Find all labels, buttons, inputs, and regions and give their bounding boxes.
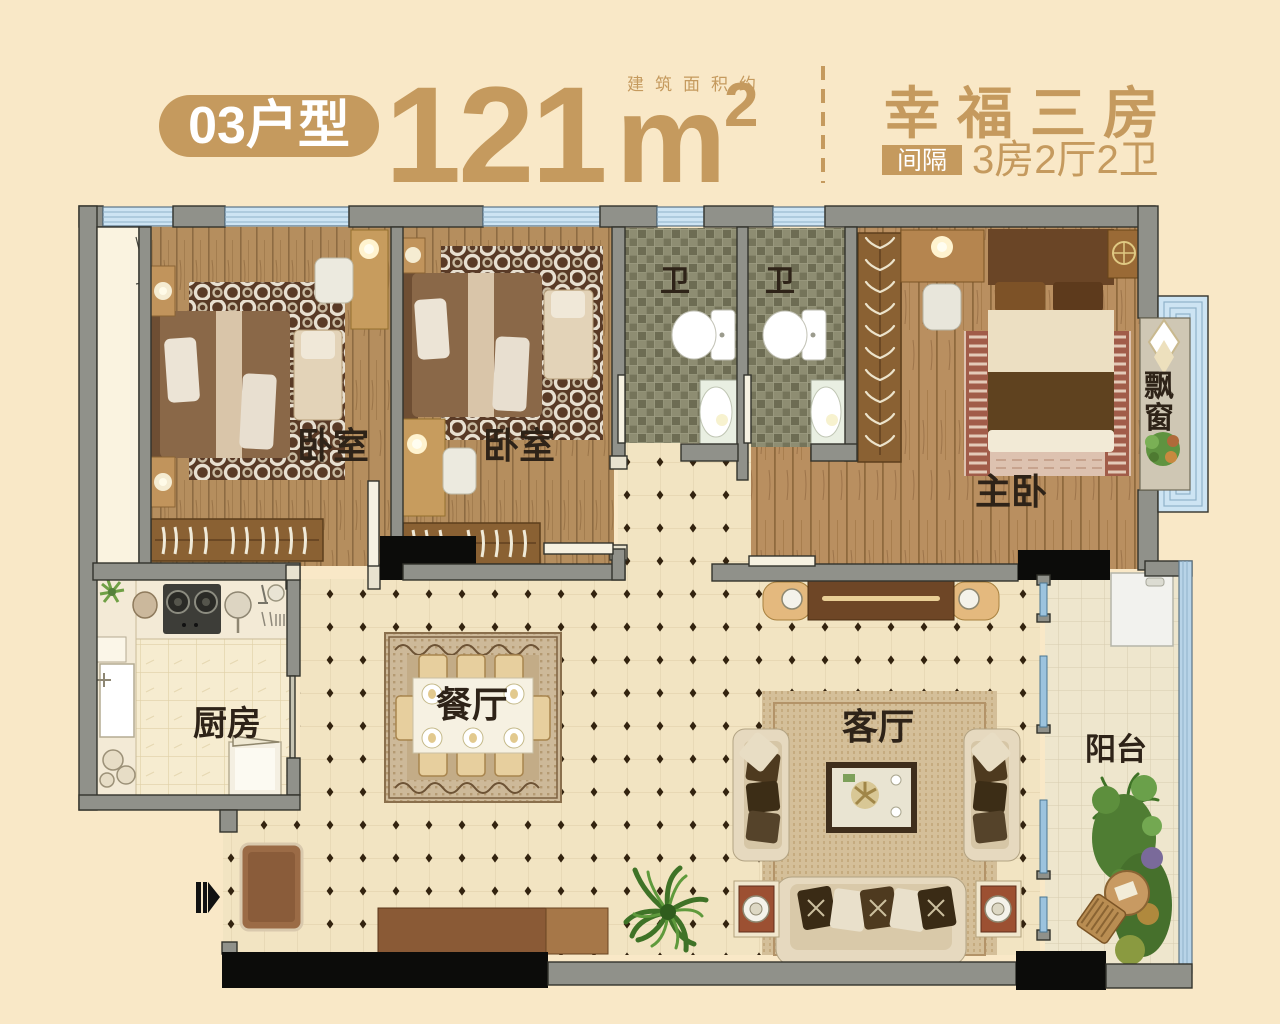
svg-text:阳台: 阳台 [1085,732,1147,767]
svg-text:餐厅: 餐厅 [436,684,508,725]
svg-text:卧室: 卧室 [483,425,555,466]
svg-text:厨房: 厨房 [193,705,261,743]
svg-text:幸福三房: 幸福三房 [884,82,1176,145]
svg-text:卫: 卫 [660,265,690,298]
svg-text:窗: 窗 [1144,401,1174,435]
svg-text:03户型: 03户型 [188,97,350,155]
svg-text:121: 121 [385,59,605,212]
svg-text:3房2厅2卫: 3房2厅2卫 [972,138,1159,182]
svg-text:卧室: 卧室 [297,425,369,466]
svg-text:建筑面积约: 建筑面积约 [627,75,767,94]
svg-text:卫: 卫 [765,265,795,298]
svg-text:客厅: 客厅 [842,706,914,747]
svg-text:主卧: 主卧 [975,471,1047,512]
svg-text:飘: 飘 [1144,370,1174,403]
svg-text:间隔: 间隔 [897,147,947,175]
